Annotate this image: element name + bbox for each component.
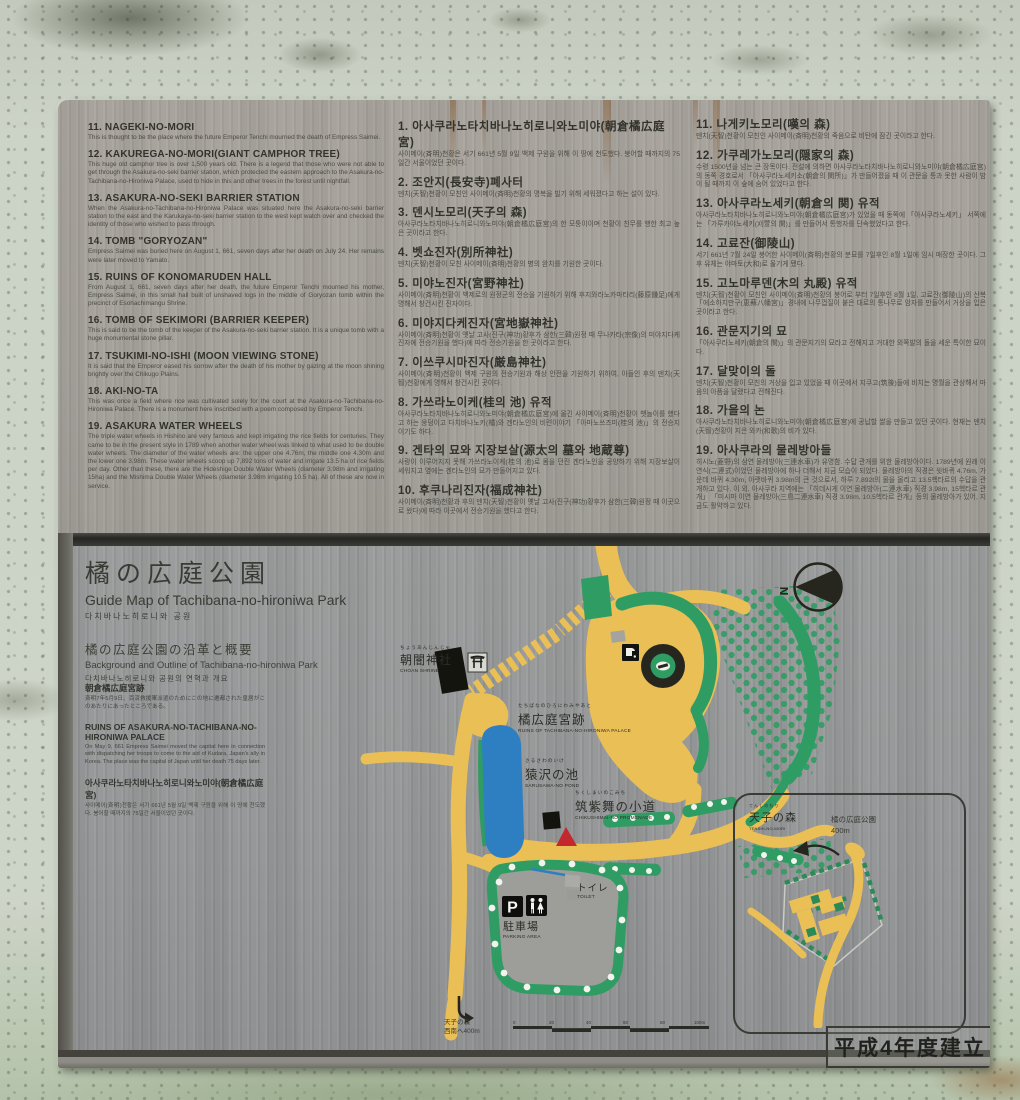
label-en: CHIKUSHIMAI-NO PROMENADE	[575, 816, 656, 821]
guide-item-body: 덴치(天智)천황이 모친의 거상을 입고 있었을 때 이곳에서 지쿠고(筑後)들…	[696, 380, 986, 398]
guide-item-title: 10. 후쿠나리진자(福成神社)	[398, 482, 680, 498]
guide-item-body: 서기 661년 7월 24일 붕어한 사이메이(斉明)천황의 분묘를 7일후인 …	[696, 252, 986, 270]
guide-item-body: 「아사쿠라노세키(朝倉의 関)」의 관문지기의 묘라고 전해지고 거대한 외쪽발…	[696, 340, 986, 358]
exit-line1: 天子の森	[444, 1019, 480, 1028]
panel-divider-bar	[58, 533, 990, 546]
guide-item: 15. 고노마루덴(木의 丸殿) 유적덴치(天智)천황이 모친인 사이메이(斉明…	[696, 275, 986, 318]
label-sarusawa-pond: さるさわのいけ 猿沢の池 SARUSAWA-NO POND	[525, 758, 579, 789]
guide-item-body: 아사쿠라노타치바나노히로니와노미야(朝倉橘広庭宮)가 있었을 때 동쪽에 「아사…	[696, 212, 986, 230]
guide-item: 2. 조안지(長安寺)폐사터덴치(天智)천황이 모친인 사이메이(斉明)천황의 …	[398, 174, 680, 200]
scale-tick: 80	[660, 1020, 665, 1025]
guide-item-body: It is said that the Emperor eased his so…	[88, 363, 384, 379]
scale-tick: 40	[586, 1020, 591, 1025]
label-palace-ruins: たちばなのひろにわみやあと 橘広庭宮跡 RUINS OF TACHIBANA-N…	[518, 703, 631, 734]
guide-item: 13. 아사쿠라노세키(朝倉의 関) 유적아사쿠라노타치바나노히로니와노미야(朝…	[696, 195, 986, 230]
label-tenshi-no-mori: てんしのもり 天子の森 TENSHI-NO-MORI	[749, 803, 797, 831]
torii-icon	[468, 653, 487, 672]
guide-item-title: 16. 관문지기의 묘	[696, 323, 986, 339]
guide-item: 10. 후쿠나리진자(福成神社)사이메이(斉明)천황과 후의 덴치(天智)천황이…	[398, 482, 680, 517]
exit-destination-label: 天子の森 西南へ400m	[444, 1019, 480, 1037]
inset-direction-arrow	[793, 841, 839, 856]
guide-item-title: 14. TOMB "GORYOZAN"	[88, 236, 384, 247]
guide-item-title: 13. ASAKURA-NO-SEKI BARRIER STATION	[88, 193, 384, 204]
guide-item-title: 15. 고노마루덴(木의 丸殿) 유적	[696, 275, 986, 291]
guide-item-body: 덴치(天智)천황이 모친 사이메이(斉明)천황의 병의 완치를 기원한 곳이다.	[398, 261, 680, 270]
english-column: 11. NAGEKI-NO-MORIThis is thought to be …	[88, 122, 384, 498]
label-en: RUINS OF TACHIBANA-NO-HIRONIWA PALACE	[518, 729, 631, 734]
guide-item-body: 덴치(天智)천황이 모친인 사이메이(斉明)천황의 붕어로 부터 7일후인 8월…	[696, 292, 986, 318]
guide-item-title: 2. 조안지(長安寺)폐사터	[398, 174, 680, 190]
guide-item: 12. KAKUREGA-NO-MORI(GIANT CAMPHOR TREE)…	[88, 149, 384, 186]
svg-text:N: N	[780, 587, 791, 596]
history-heading-kr: 아사쿠라노타치바나노히로니와노미야(朝倉橘広庭宮)	[85, 777, 265, 801]
guide-item: 18. AKI-NO-TAThis was once a field where…	[88, 386, 384, 414]
guide-item: 6. 미야지다케진자(宮地嶽神社)사이메이(斉明)천황이 옛날 고사(진구(神功…	[398, 315, 680, 350]
label-jp: 駐車場	[503, 918, 541, 934]
guide-item: 11. NAGEKI-NO-MORIThis is thought to be …	[88, 122, 384, 142]
label-jp: 猿沢の池	[525, 764, 579, 783]
guide-map-panel: 橘の広庭公園 Guide Map of Tachibana-no-hironiw…	[58, 546, 990, 1050]
guide-item-title: 13. 아사쿠라노세키(朝倉의 関) 유적	[696, 195, 986, 211]
guide-item-body: 사이메이(斉明)천황이 백제 구원의 전승기원과 해상 안전을 기원하기 위하여…	[398, 371, 680, 389]
guide-text-panel: 11. NAGEKI-NO-MORIThis is thought to be …	[58, 100, 990, 533]
guide-item-title: 18. 가을의 논	[696, 402, 986, 418]
guide-item-title: 15. RUINS OF KONOMARUDEN HALL	[88, 272, 384, 283]
guide-item-body: 아사쿠라노타치바나노히로니와노미야(朝倉橘広庭宮)에 공납할 쌀을 만들고 있던…	[696, 419, 986, 437]
scale-tick: 20	[549, 1020, 554, 1025]
park-title-jp: 橘の広庭公園	[85, 554, 346, 590]
guide-item-body: This was once a field where rice was cul…	[88, 398, 384, 414]
guide-item: 15. RUINS OF KONOMARUDEN HALLFrom August…	[88, 272, 384, 309]
guide-item: 19. ASAKURA WATER WHEELSThe triple water…	[88, 421, 384, 490]
label-en: SARUSAWA-NO POND	[525, 784, 579, 789]
compass-rose: N	[780, 558, 846, 621]
guide-item-title: 6. 미야지다케진자(宮地嶽神社)	[398, 315, 680, 331]
park-title-kr: 다치바나노히로니와 공원	[85, 611, 346, 622]
svg-text:P: P	[507, 900, 518, 917]
guide-item: 7. 이쓰쿠시마진자(厳島神社)사이메이(斉明)천황이 백제 구원의 전승기원과…	[398, 354, 680, 389]
label-jp: 筑紫舞の小道	[575, 796, 656, 815]
guide-item-body: This huge old camphor tree is over 1,500…	[88, 161, 384, 186]
green-patch-north	[581, 575, 612, 620]
scale-tick: 60	[623, 1020, 628, 1025]
metal-sign-plate: 11. NAGEKI-NO-MORIThis is thought to be …	[58, 100, 990, 1068]
guide-item: 17. TSUKIMI-NO-ISHI (MOON VIEWING STONE)…	[88, 351, 384, 379]
guide-item-body: 아사쿠라노타치바나노히로니와노미야(朝倉橘広庭宮)에 옮긴 사이메이(斉明)천황…	[398, 411, 680, 437]
sarusawa-pond	[482, 725, 524, 858]
exit-line2: 西南へ400m	[444, 1028, 480, 1037]
inset-distance-line2: 400m	[831, 826, 876, 837]
history-heading-jp: 朝倉橘広庭宮跡	[85, 682, 265, 694]
korean-column-1-10: 1. 아사쿠라노타치바나노히로니와노미야(朝倉橘広庭宮)사이메이(斉明)천황은 …	[398, 118, 680, 522]
history-heading-en: RUINS OF ASAKURA-NO-TACHIBANA-NO-HIRONIW…	[85, 722, 265, 742]
guide-item-title: 17. TSUKIMI-NO-ISHI (MOON VIEWING STONE)	[88, 351, 384, 362]
road-west	[455, 700, 472, 996]
guide-item-title: 8. 가쓰라노이케(桂의 池) 유적	[398, 394, 680, 410]
guide-item-title: 1. 아사쿠라노타치바나노히로니와노미야(朝倉橘広庭宮)	[398, 118, 680, 150]
guide-item-body: 수령 1500년을 넘는 큰 장목이다. 전설에 의하면 아사쿠라노타치바나노히…	[696, 164, 986, 190]
palace-history-block: 朝倉橘広庭宮跡 斉明7年5月9日、百済救援軍派遣のためにこの地に遷都された皇居が…	[85, 672, 265, 819]
guide-item-title: 7. 이쓰쿠시마진자(厳島神社)	[398, 354, 680, 370]
monument-square	[542, 811, 560, 829]
guide-item-title: 19. 아사쿠라의 물레방아들	[696, 442, 986, 458]
guide-item-body: From August 1, 661, seven days after her…	[88, 284, 384, 309]
fountain-icon	[622, 644, 639, 661]
label-promenade: ちくしまいのこみち 筑紫舞の小道 CHIKUSHIMAI-NO PROMENAD…	[575, 790, 656, 821]
label-en: TOILET	[577, 895, 609, 900]
guide-item-title: 17. 달맞이의 돌	[696, 363, 986, 379]
guide-item-title: 18. AKI-NO-TA	[88, 386, 384, 397]
guide-item: 14. 고료잔(御陵山)서기 661년 7월 24일 붕어한 사이메이(斉明)천…	[696, 235, 986, 270]
label-en: PARKING AREA	[503, 935, 541, 940]
scale-segment	[552, 1029, 591, 1032]
guide-item-title: 3. 덴시노모리(天子의 森)	[398, 204, 680, 220]
guide-item-body: 덴치(天智)천황이 모친인 사이메이(斉明)천황의 명복을 빌기 위해 세워졌다…	[398, 191, 680, 200]
guide-item: 11. 나게키노모리(嘆의 森)덴치(天智)천황이 모친인 사이메이(斉明)천황…	[696, 116, 986, 142]
history-body-en: On May 9, 661 Empress Saimei moved the c…	[85, 744, 265, 767]
scale-tick: 100m	[694, 1020, 705, 1025]
label-jp: 天子の森	[749, 809, 797, 825]
guide-item-title: 9. 겐타의 묘와 지장보살(源太의 墓와 地蔵尊)	[398, 442, 680, 458]
guide-item-title: 19. ASAKURA WATER WHEELS	[88, 421, 384, 432]
guide-item-title: 11. 나게키노모리(嘆의 森)	[696, 116, 986, 132]
label-parking: 駐車場 PARKING AREA	[503, 918, 541, 940]
park-subtitle-en: Background and Outline of Tachibana-no-h…	[85, 660, 318, 671]
erection-year-plaque: 平成4年度建立	[826, 1026, 990, 1068]
compass-icon: N	[780, 558, 846, 616]
guide-item: 1. 아사쿠라노타치바나노히로니와노미야(朝倉橘広庭宮)사이메이(斉明)천황은 …	[398, 118, 680, 169]
guide-item: 12. 가쿠레가노모리(隠家의 森)수령 1500년을 넘는 큰 장목이다. 전…	[696, 147, 986, 190]
guide-item-body: 사랑이 이루어지지 못해 가쓰라노이케(桂의 池)로 몸을 던진 겐타노인을 공…	[398, 459, 680, 477]
label-toilet: トイレ TOILET	[577, 880, 609, 900]
guide-item-title: 5. 미야노진자(宮野神社)	[398, 275, 680, 291]
guide-item: 18. 가을의 논아사쿠라노타치바나노히로니와노미야(朝倉橘広庭宮)에 공납할 …	[696, 402, 986, 437]
guide-item: 5. 미야노진자(宮野神社)사이메이(斉明)천황이 백제로의 원정군의 전승을 …	[398, 275, 680, 310]
plate-left-frame	[58, 533, 73, 1068]
park-subtitle-jp: 橘の広庭公園の沿革と概要	[85, 639, 318, 658]
guide-item-body: Empress Saimei was buried here on August…	[88, 248, 384, 264]
guide-item-body: 사이메이(斉明)천황이 옛날 고사(진구(神功)황후가 삼한(三韓)원정 때 무…	[398, 332, 680, 350]
guide-item-body: 아사쿠라노타치바나노히로니와노미야(朝倉橘広庭宮)의 한 모퉁이이며 천황이 친…	[398, 221, 680, 239]
inset-locator-map: てんしのもり 天子の森 TENSHI-NO-MORI 橘の広庭公園 400m	[733, 793, 966, 1034]
guide-item-body: 사이메이(斉明)천황과 후의 덴치(天智)천황이 옛날 고사(진구(神功)황후가…	[398, 499, 680, 517]
label-en: TENSHI-NO-MORI	[749, 826, 797, 831]
guide-item-body: When the Asakura-no-Tachibana-no-Hironiw…	[88, 205, 384, 230]
guide-item-body: This is thought to be the place where th…	[88, 134, 384, 142]
guide-item: 16. 관문지기의 묘「아사쿠라노세키(朝倉의 関)」의 관문지기의 묘라고 전…	[696, 323, 986, 358]
map-scale-bar: 0 20 40 60 80 100m	[513, 1020, 723, 1036]
guide-item-body: The triple water wheels in Hishino are v…	[88, 433, 384, 490]
guide-item-body: 히시노(菱野)의 삼연 물레방아(三連水車)가 유명함. 수답 관개를 위한 물…	[696, 459, 986, 512]
korean-column-11-19: 11. 나게키노모리(嘆의 森)덴치(天智)천황이 모친인 사이메이(斉明)천황…	[696, 116, 986, 517]
label-choan-shrine: ちょうあんじんじゃ 朝闇神社 CHOAN SHRINE	[400, 645, 452, 674]
label-jp: トイレ	[577, 880, 609, 894]
scale-segment	[669, 1026, 709, 1029]
guide-item-body: This is said to be the tomb of the keepe…	[88, 327, 384, 343]
label-en: CHOAN SHRINE	[400, 669, 452, 674]
history-body-kr: 사이메이(斉明)천황은 서기 661년 5월 9일 백제 구원을 위해 이 땅에…	[85, 803, 265, 819]
guide-item: 8. 가쓰라노이케(桂의 池) 유적아사쿠라노타치바나노히로니와노미야(朝倉橘広…	[398, 394, 680, 437]
scale-tick: 0	[513, 1020, 516, 1025]
parking-icon: P	[502, 896, 523, 917]
guide-item: 4. 벳쇼진자(別所神社)덴치(天智)천황이 모친 사이메이(斉明)천황의 병의…	[398, 244, 680, 270]
green-crescent-lower	[697, 714, 704, 768]
guide-item: 14. TOMB "GORYOZAN"Empress Saimei was bu…	[88, 236, 384, 264]
label-jp: 橘広庭宮跡	[518, 709, 631, 728]
guide-item-title: 12. 가쿠레가노모리(隠家의 森)	[696, 147, 986, 163]
guide-item-body: 사이메이(斉明)천황이 백제로의 원정군의 전승을 기원하기 위해 후지와라노카…	[398, 292, 680, 310]
scale-segment	[513, 1026, 552, 1029]
guide-item-title: 16. TOMB OF SEKIMORI (BARRIER KEEPER)	[88, 315, 384, 326]
guide-item-body: 사이메이(斉明)천황은 서기 661년 5월 9일 백제 구원을 위해 이 땅에…	[398, 151, 680, 169]
guide-item: 13. ASAKURA-NO-SEKI BARRIER STATIONWhen …	[88, 193, 384, 230]
restroom-icon	[526, 895, 547, 916]
guide-item-title: 11. NAGEKI-NO-MORI	[88, 122, 384, 133]
guide-item-title: 14. 고료잔(御陵山)	[696, 235, 986, 251]
inset-distance-label: 橘の広庭公園 400m	[831, 815, 876, 836]
map-title-block: 橘の広庭公園 Guide Map of Tachibana-no-hironiw…	[85, 554, 346, 622]
road-west-branch	[366, 757, 461, 762]
park-title-en: Guide Map of Tachibana-no-hironiwa Park	[85, 592, 346, 608]
guide-item: 16. TOMB OF SEKIMORI (BARRIER KEEPER)Thi…	[88, 315, 384, 343]
guide-item: 9. 겐타의 묘와 지장보살(源太의 墓와 地蔵尊)사랑이 이루어지지 못해 가…	[398, 442, 680, 477]
inset-distance-line1: 橘の広庭公園	[831, 815, 876, 826]
guide-item-title: 4. 벳쇼진자(別所神社)	[398, 244, 680, 260]
guide-item: 17. 달맞이의 돌덴치(天智)천황이 모친의 거상을 입고 있었을 때 이곳에…	[696, 363, 986, 398]
erection-year-text: 平成4年度建立	[834, 1032, 986, 1062]
guide-item-body: 덴치(天智)천황이 모친인 사이메이(斉明)천황의 죽음으로 비탄에 잠긴 곳이…	[696, 133, 986, 142]
label-jp: 朝闇神社	[400, 651, 452, 668]
gray-building	[610, 630, 625, 643]
guide-item-title: 12. KAKUREGA-NO-MORI(GIANT CAMPHOR TREE)	[88, 149, 384, 160]
scale-segment	[630, 1029, 669, 1032]
scale-segment	[591, 1026, 630, 1029]
red-triangle-marker	[556, 827, 577, 846]
history-body-jp: 斉明7年5月9日、百済救援軍派遣のためにこの地に遷都された皇居がこのあたりにあっ…	[85, 696, 265, 712]
guide-item: 19. 아사쿠라의 물레방아들히시노(菱野)의 삼연 물레방아(三連水車)가 유…	[696, 442, 986, 512]
guide-item: 3. 덴시노모리(天子의 森)아사쿠라노타치바나노히로니와노미야(朝倉橘広庭宮)…	[398, 204, 680, 239]
